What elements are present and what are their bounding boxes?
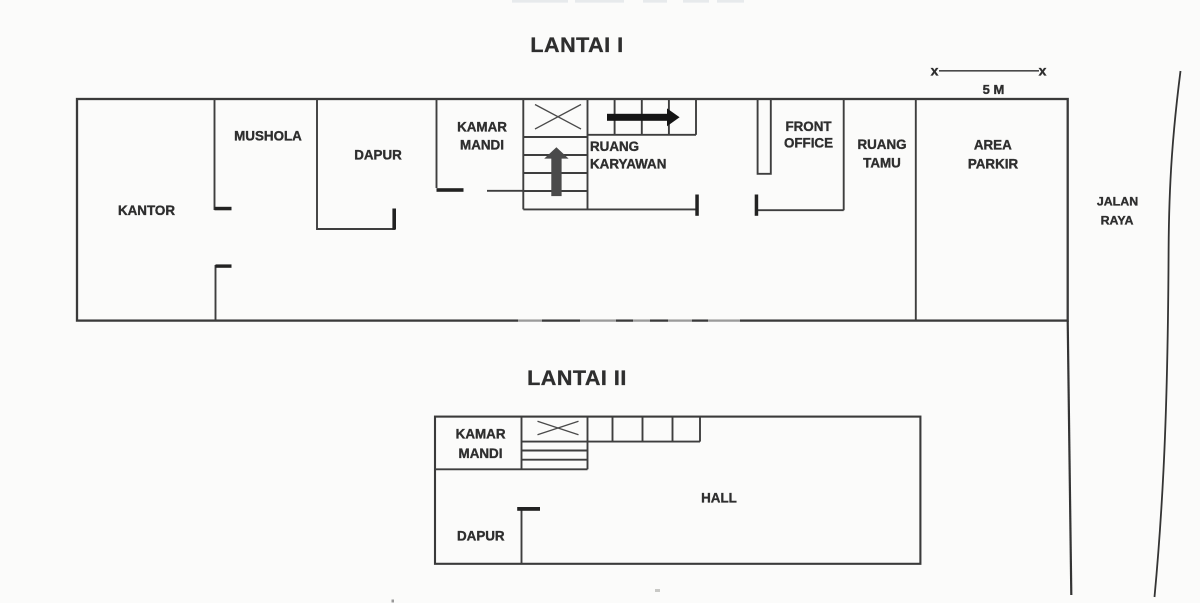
svg-text:KAMAR: KAMAR	[457, 120, 507, 135]
svg-text:5 M: 5 M	[983, 82, 1005, 97]
svg-text:MUSHOLA: MUSHOLA	[234, 129, 302, 144]
svg-text:FRONT: FRONT	[785, 119, 832, 134]
svg-text:JALAN: JALAN	[1097, 195, 1138, 209]
svg-text:OFFICE: OFFICE	[784, 136, 833, 151]
svg-text:RUANG: RUANG	[590, 139, 639, 154]
svg-text:DAPUR: DAPUR	[457, 528, 505, 543]
svg-text:x: x	[931, 63, 939, 79]
svg-text:DAPUR: DAPUR	[354, 147, 402, 162]
svg-text:MANDI: MANDI	[460, 137, 504, 152]
svg-text:x: x	[1039, 63, 1047, 79]
svg-text:MANDI: MANDI	[459, 446, 503, 461]
svg-text:RAYA: RAYA	[1101, 213, 1134, 227]
svg-text:PARKIR: PARKIR	[968, 156, 1019, 171]
svg-text:LANTAI I: LANTAI I	[530, 33, 623, 57]
svg-text:KAMAR: KAMAR	[456, 426, 506, 441]
svg-text:RUANG: RUANG	[857, 137, 906, 152]
svg-text:TAMU: TAMU	[863, 155, 901, 170]
svg-text:HALL: HALL	[701, 490, 737, 505]
svg-text:KANTOR: KANTOR	[118, 203, 175, 218]
svg-text:KARYAWAN: KARYAWAN	[590, 156, 666, 171]
svg-text:LANTAI II: LANTAI II	[527, 366, 627, 390]
svg-text:AREA: AREA	[974, 138, 1012, 153]
